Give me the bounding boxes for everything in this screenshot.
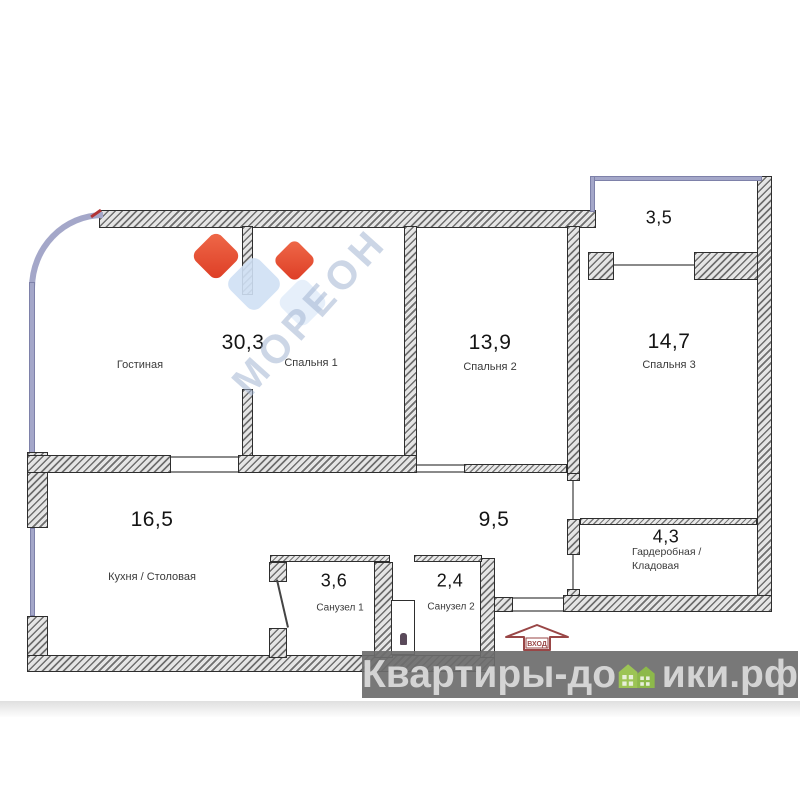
wardrobe-label: Гардеробная / Кладовая bbox=[632, 545, 701, 573]
balcony-window-glazing bbox=[590, 176, 762, 181]
wall-mid-left bbox=[27, 455, 171, 473]
footer-watermark-band: Квартиры-до ики.рф bbox=[362, 651, 798, 698]
wall-right-outer bbox=[757, 176, 772, 607]
bedroom2-area-value: 13,9 bbox=[469, 331, 512, 355]
balcony-area-value: 3,5 bbox=[646, 208, 673, 229]
bedroom3-label: Спальня 3 bbox=[642, 359, 695, 371]
balcony-door-threshold bbox=[614, 264, 694, 266]
entrance-arrow-icon: ВХОД bbox=[504, 622, 570, 653]
wall-bedroom3-top-right bbox=[694, 252, 758, 280]
utility-shaft bbox=[391, 600, 415, 655]
wardrobe-door-line-1 bbox=[572, 481, 574, 519]
living-kitchen-opening-bottom bbox=[171, 471, 238, 473]
entrance-opening-top bbox=[513, 597, 563, 599]
bathroom1-label: Санузел 1 bbox=[316, 603, 363, 614]
hallway-area-value: 9,5 bbox=[479, 508, 510, 532]
green-houses-icon bbox=[618, 656, 660, 694]
bathroom2-area-value: 2,4 bbox=[437, 571, 464, 592]
bathroom1-door-leaf bbox=[276, 580, 289, 628]
wall-bathrooms-top-1 bbox=[270, 555, 390, 562]
bathroom2-label: Санузел 2 bbox=[427, 602, 474, 613]
wall-top-main bbox=[99, 210, 596, 228]
left-glazing-upper bbox=[29, 282, 35, 454]
wall-bottom-right bbox=[563, 595, 772, 612]
wall-bedroom2-bottom bbox=[464, 464, 567, 473]
wall-hall-wardrobe-1 bbox=[567, 473, 580, 481]
bathroom1-area-value: 3,6 bbox=[321, 571, 348, 592]
wall-bedroom3-top-left bbox=[588, 252, 614, 280]
balcony-window-glazing-left bbox=[590, 176, 595, 212]
entrance-opening-bottom bbox=[513, 610, 563, 612]
bedroom3-area-value: 14,7 bbox=[648, 330, 691, 354]
living-label: Гостиная bbox=[117, 359, 163, 371]
toilet-icon bbox=[400, 633, 407, 645]
bedroom2-door-bottom bbox=[417, 471, 464, 473]
diagonal-watermark-text: МОРЕОН bbox=[200, 193, 421, 431]
wall-bathroom2-right bbox=[480, 558, 495, 658]
wall-bathroom1-left-lower bbox=[269, 628, 287, 658]
photo-edge-shadow bbox=[0, 701, 800, 717]
wall-hall-wardrobe-2 bbox=[567, 519, 580, 555]
bedroom2-door-top bbox=[417, 464, 464, 466]
kitchen-area-value: 16,5 bbox=[131, 508, 174, 532]
wardrobe-door-line-2 bbox=[572, 555, 574, 589]
wall-bedroom3-wardrobe bbox=[580, 518, 757, 525]
kitchen-label: Кухня / Столовая bbox=[108, 571, 196, 583]
bedroom2-label: Спальня 2 bbox=[463, 361, 516, 373]
wall-mid-center bbox=[238, 455, 417, 473]
footer-text-prefix: Квартиры-до bbox=[362, 653, 616, 697]
wardrobe-label-line2: Кладовая bbox=[632, 559, 701, 573]
wall-bedroom1-bedroom2 bbox=[404, 226, 417, 473]
wardrobe-label-line1: Гардеробная / bbox=[632, 545, 701, 559]
curved-bay-window-glazing bbox=[29, 212, 103, 288]
living-kitchen-opening-top bbox=[171, 456, 238, 458]
entrance-label: ВХОД bbox=[527, 641, 547, 648]
floor-plan: 30,3 Гостиная Спальня 1 13,9 Спальня 2 1… bbox=[0, 0, 800, 800]
footer-text-suffix: ики.рф bbox=[662, 653, 798, 697]
wall-bedroom2-bedroom3 bbox=[567, 226, 580, 475]
logo-diamond-red-2 bbox=[273, 239, 317, 283]
kitchen-window-glazing bbox=[30, 528, 35, 616]
wall-bathrooms-top-2 bbox=[414, 555, 482, 562]
